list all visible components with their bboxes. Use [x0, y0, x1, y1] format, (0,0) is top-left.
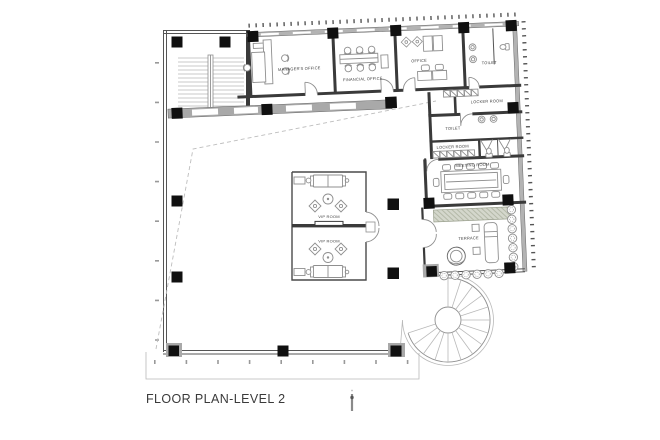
room-label-managers-office: MANAGER'S OFFICE: [278, 65, 321, 72]
floor-plan-drawing: VIP ROOM VIP ROOM: [0, 0, 660, 440]
plan-title: FLOOR PLAN-LEVEL 2: [146, 392, 285, 406]
room-label-office: OFFICE: [411, 58, 427, 64]
room-label-locker-lower: LOCKER ROOM: [437, 144, 469, 150]
vip-lower-furniture: [294, 243, 349, 277]
room-label-financial-office: FINANCIAL OFFICE: [343, 76, 383, 83]
locker-room-lower: LOCKER ROOM: [433, 143, 475, 158]
room-label-vip-lower: VIP ROOM: [318, 239, 340, 244]
right-exterior-wall: [513, 21, 534, 271]
toilet-upper-room: TOILET: [468, 28, 509, 66]
financial-office: FINANCIAL OFFICE: [339, 46, 388, 83]
spiral-staircase: [400, 275, 494, 366]
top-exterior-wall: [246, 14, 520, 37]
window-wall-strip: [168, 96, 397, 119]
planter-bed: [433, 207, 510, 222]
vip-upper-furniture: [294, 175, 349, 212]
room-label-locker-upper: LOCKER ROOM: [471, 98, 503, 104]
egg-chair: [447, 247, 466, 266]
building-upper-right-section: MANAGER'S OFFICE FINANCIAL OFFICE OFF: [165, 14, 535, 291]
managers-office: MANAGER'S OFFICE: [242, 38, 321, 85]
floor-plan-canvas: VIP ROOM VIP ROOM: [0, 0, 660, 440]
room-label-toilet-lower: TOILET: [445, 125, 461, 131]
north-marker-icon: [350, 390, 353, 411]
lounge-chair: [484, 222, 499, 263]
locker-room-upper: LOCKER ROOM: [443, 88, 503, 105]
vip-rooms-block: VIP ROOM VIP ROOM: [292, 172, 379, 280]
office-room: OFFICE: [401, 35, 447, 81]
room-label-terrace: TERRACE: [458, 235, 479, 241]
meeting-room: MEETING ROOM: [433, 161, 510, 200]
room-label-toilet-upper: TOILET: [482, 60, 498, 66]
structural-columns-left: [166, 37, 405, 358]
room-label-vip-upper: VIP ROOM: [318, 214, 340, 219]
